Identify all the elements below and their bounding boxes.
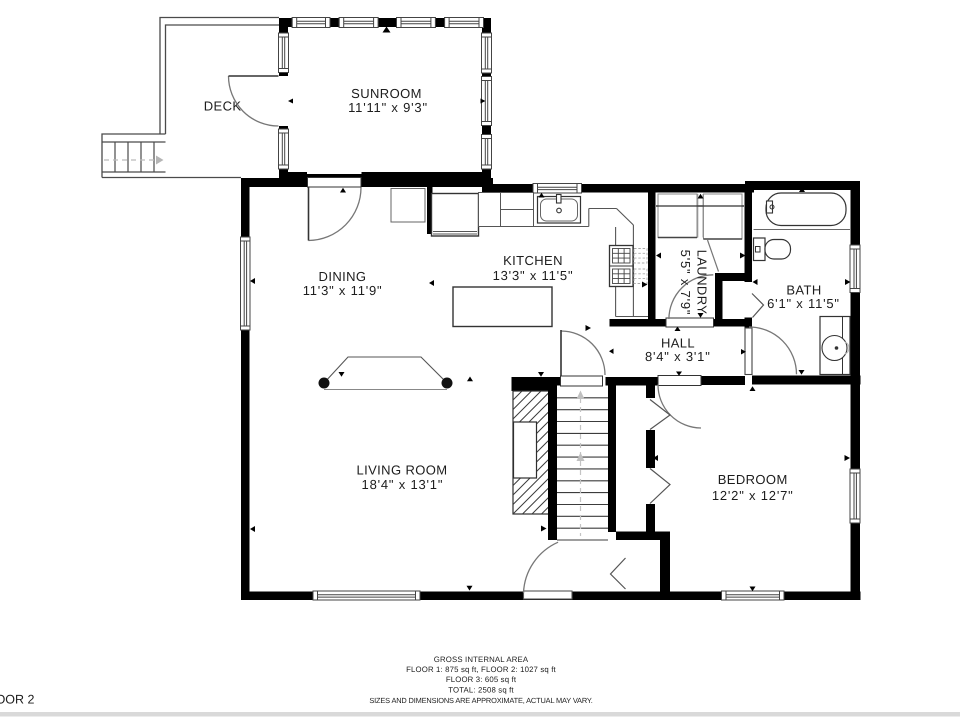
svg-text:GROSS INTERNAL AREA: GROSS INTERNAL AREA <box>434 655 529 664</box>
svg-text:LIVING ROOM: LIVING ROOM <box>356 463 447 478</box>
svg-text:FLOOR 2: FLOOR 2 <box>0 693 35 707</box>
svg-text:11'3" x 11'9": 11'3" x 11'9" <box>303 283 383 298</box>
svg-text:LAUNDRY: LAUNDRY <box>695 250 710 315</box>
svg-text:5'5" x 7'9": 5'5" x 7'9" <box>678 250 693 316</box>
svg-text:TOTAL: 2508 sq ft: TOTAL: 2508 sq ft <box>448 686 514 695</box>
svg-text:FLOOR 1: 875 sq ft, FLOOR 2: 1: FLOOR 1: 875 sq ft, FLOOR 2: 1027 sq ft <box>406 665 556 674</box>
svg-text:13'3" x 11'5": 13'3" x 11'5" <box>493 268 574 283</box>
svg-text:DINING: DINING <box>319 269 367 284</box>
svg-text:6'1" x 11'5": 6'1" x 11'5" <box>767 296 840 311</box>
svg-text:12'2" x 12'7": 12'2" x 12'7" <box>712 488 794 503</box>
svg-text:FLOOR 3: 605 sq ft: FLOOR 3: 605 sq ft <box>446 675 517 684</box>
svg-text:SUNROOM: SUNROOM <box>351 86 422 101</box>
svg-text:8'4" x 3'1": 8'4" x 3'1" <box>645 349 711 364</box>
svg-text:DECK: DECK <box>204 99 242 114</box>
svg-text:18'4" x 13'1": 18'4" x 13'1" <box>362 477 444 492</box>
svg-text:KITCHEN: KITCHEN <box>503 253 563 268</box>
svg-text:11'11" x 9'3": 11'11" x 9'3" <box>348 100 428 115</box>
svg-text:SIZES AND DIMENSIONS ARE APPRO: SIZES AND DIMENSIONS ARE APPROXIMATE, AC… <box>369 696 592 705</box>
svg-text:BEDROOM: BEDROOM <box>718 472 788 487</box>
